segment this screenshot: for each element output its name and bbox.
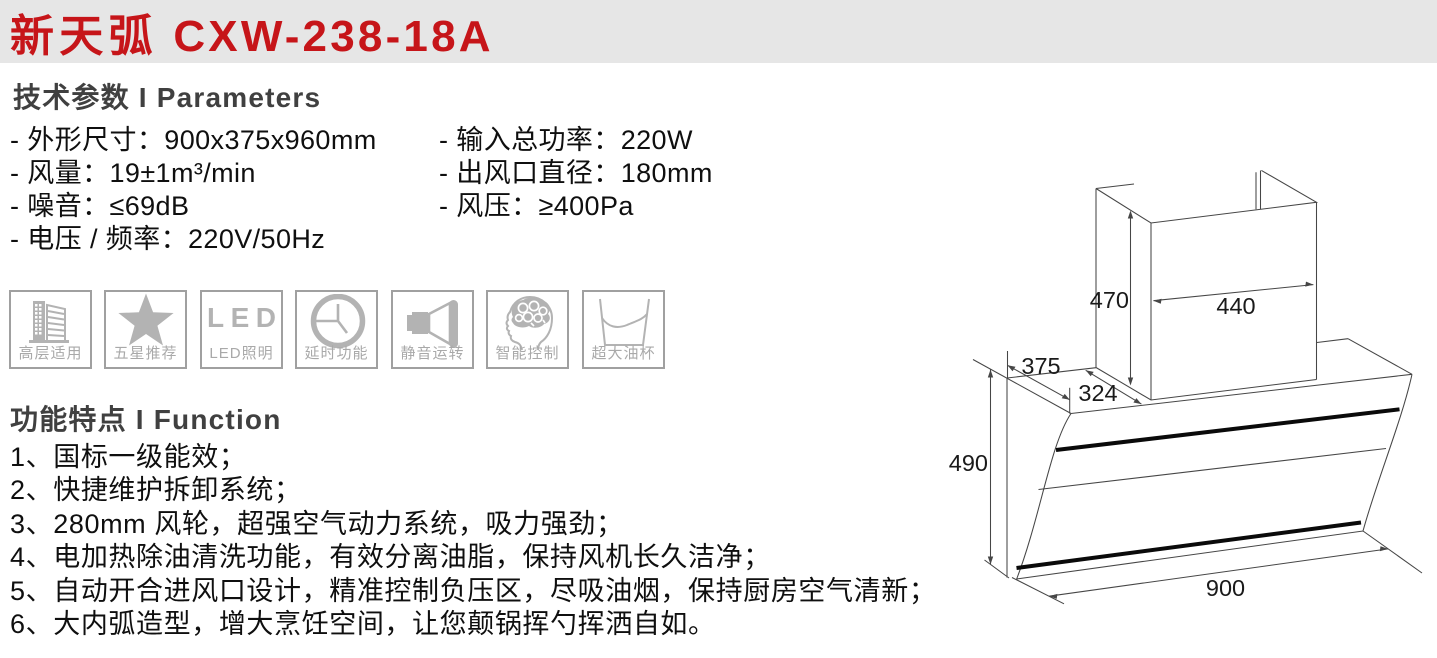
svg-text:490: 490 [949,450,988,476]
svg-text:324: 324 [1078,380,1117,406]
svg-text:470: 470 [1090,287,1129,313]
svg-text:440: 440 [1216,293,1255,319]
svg-text:375: 375 [1021,353,1060,379]
svg-text:900: 900 [1206,575,1245,601]
